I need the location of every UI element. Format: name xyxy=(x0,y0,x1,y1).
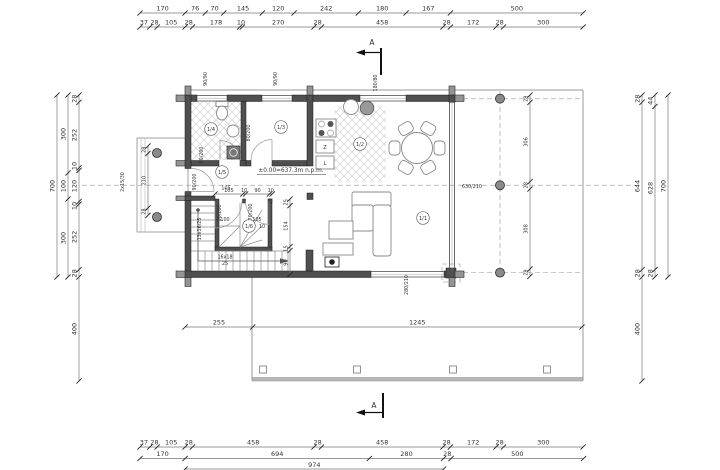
coffee-table xyxy=(329,221,353,239)
dim-label: 28 xyxy=(634,95,642,103)
dim-label: 70 xyxy=(210,5,218,13)
dim-label: 105 xyxy=(165,439,177,447)
dim-label: 28 xyxy=(524,96,530,102)
chair xyxy=(434,141,445,155)
dim-label: 100 xyxy=(60,180,68,192)
opening-label: 80/200 xyxy=(199,147,205,164)
room-door xyxy=(251,140,272,161)
svg-text:1/4: 1/4 xyxy=(207,127,215,133)
dim-label: 90 xyxy=(254,188,260,194)
dim-label: 28 xyxy=(142,147,148,153)
section-label: A xyxy=(369,38,375,47)
dim-label: 255 xyxy=(213,319,225,327)
dim-label: 300 xyxy=(537,439,549,447)
dim-label: 170 xyxy=(156,5,168,13)
dim-label: 308 xyxy=(524,224,530,234)
dim-stair-right: 25 154 15 90 xyxy=(284,196,293,277)
terrace-post xyxy=(354,366,361,373)
section-label: A xyxy=(371,401,377,410)
dim-bottom-row3: 974 xyxy=(183,461,447,470)
annotations: ±0.00=637.3m n.p.m. 90/200 80/200 80/200… xyxy=(120,72,482,295)
dim-label: 28 xyxy=(142,208,148,214)
dim-label: 500 xyxy=(511,5,523,13)
floor-plan-page: Z L 1/4 1/3 1/2 1/5 1/6 1/1 ±0.00=637.3m… xyxy=(0,0,720,470)
terrace-post xyxy=(260,366,267,373)
dim-label: 28 xyxy=(314,439,322,447)
dim-label: 28 xyxy=(524,269,530,275)
appliance-label: Z xyxy=(323,145,327,151)
svg-text:1/5: 1/5 xyxy=(218,170,226,176)
opening-label: 80/200 xyxy=(246,125,252,142)
stair-note: 13x16/25 xyxy=(197,218,203,241)
fridge: Z xyxy=(316,140,334,153)
dim-label: 28 xyxy=(150,439,158,447)
sofa xyxy=(352,192,391,256)
dim-label: 28 xyxy=(634,269,642,277)
dim-porch: 28 210 28 xyxy=(142,143,151,218)
dim-label: 458 xyxy=(247,439,259,447)
dim-label: 210 xyxy=(142,176,148,186)
toilet xyxy=(216,102,228,121)
dim-label: 458 xyxy=(376,19,388,27)
dim-label: 28 xyxy=(185,19,193,27)
room-label-kitchen: 1/2 xyxy=(354,138,367,151)
terrace-post xyxy=(544,366,551,373)
dim-label: 300 xyxy=(537,19,549,27)
stair-note: 10 xyxy=(259,224,265,230)
bathroom-window xyxy=(197,96,227,102)
dim-label: 400 xyxy=(71,323,79,335)
appliance-label: L xyxy=(324,161,327,167)
opening-label: 280/210 xyxy=(404,275,410,295)
svg-text:1/1: 1/1 xyxy=(419,216,427,222)
dim-label: 10 xyxy=(71,162,79,170)
washing-machine xyxy=(227,146,240,159)
dim-label: 28 xyxy=(150,19,158,27)
dim-label: 1245 xyxy=(409,319,426,327)
dim-label: 28 xyxy=(443,450,451,458)
room-window xyxy=(262,96,292,102)
dim-label: 105 xyxy=(224,188,234,194)
opening-label: 90/90 xyxy=(273,72,279,86)
dim-label: 145 xyxy=(237,5,249,13)
room-label-hall: 1/5 xyxy=(216,166,229,179)
dim-label: 10 xyxy=(241,188,247,194)
dim-label: 500 xyxy=(511,450,523,458)
svg-text:1/3: 1/3 xyxy=(277,125,285,131)
kitchen-window xyxy=(360,96,406,102)
dim-label: 252 xyxy=(71,129,79,141)
dim-label: 28 xyxy=(524,182,530,188)
dim-terrace-horizontal: 255 1245 xyxy=(183,319,585,330)
section-marker-bottom: A xyxy=(356,393,383,418)
dim-label: 280 xyxy=(400,450,412,458)
dim-label: 25 xyxy=(284,199,290,205)
opening-label: 630/210 xyxy=(462,184,482,190)
dim-label: 120 xyxy=(71,180,79,192)
dim-label: 300 xyxy=(60,232,68,244)
dim-label: 172 xyxy=(467,439,479,447)
dim-label: 28 xyxy=(443,19,451,27)
dim-label: 10 xyxy=(268,188,274,194)
dim-label: 167 xyxy=(422,5,434,13)
stair-note: 100 xyxy=(220,217,229,223)
dim-label: 644 xyxy=(634,180,642,192)
dim-label: 105 xyxy=(165,19,177,27)
dim-label: 170 xyxy=(156,450,168,458)
dim-left-outer: 700 xyxy=(49,92,60,279)
dining-table xyxy=(389,120,445,175)
dim-label: 252 xyxy=(71,231,79,243)
dim-label: 10 xyxy=(71,202,79,210)
dim-right-low: 400 xyxy=(634,277,645,384)
opening-label: 2x15/30 xyxy=(120,172,126,192)
dim-label: 28 xyxy=(496,19,504,27)
dim-label: 172 xyxy=(467,19,479,27)
dim-label: 178 xyxy=(210,19,222,27)
dim-label: 306 xyxy=(524,137,530,147)
opening-label: 90/90 xyxy=(203,72,209,86)
floor-plan-drawing: Z L 1/4 1/3 1/2 1/5 1/6 1/1 ±0.00=637.3m… xyxy=(0,0,720,470)
dim-label: 694 xyxy=(271,450,283,458)
opening-label: 180/80 xyxy=(373,75,379,92)
opening-label: 90/200 xyxy=(192,174,198,191)
dim-left-inner: 28 252 10 120 10 252 28 xyxy=(71,92,82,279)
wash-basin xyxy=(227,125,239,137)
terrace-column xyxy=(496,181,505,190)
dim-label: 300 xyxy=(60,128,68,140)
porch-column xyxy=(153,149,162,158)
section-marker-top: A xyxy=(356,38,381,75)
dim-label: 458 xyxy=(376,439,388,447)
dim-bottom-row2: 170 694 280 28 500 xyxy=(137,450,586,461)
dim-left-mid: 300 100 300 xyxy=(60,92,71,279)
dim-left-low: 400 xyxy=(71,277,82,384)
dim-label: 270 xyxy=(272,19,284,27)
dim-label: 628 xyxy=(647,182,655,194)
dim-label: 37 xyxy=(140,19,148,27)
dim-right-inner: 28 644 28 xyxy=(634,92,645,279)
dim-label: 242 xyxy=(320,5,332,13)
dim-label: 120 xyxy=(272,5,284,13)
dim-top-row1: 170 76 70 145 120 242 180 167 500 xyxy=(137,5,585,16)
dim-label: 76 xyxy=(191,5,199,13)
dim-label: 28 xyxy=(496,439,504,447)
dim-label: 154 xyxy=(284,221,290,231)
room-label-living: 1/1 xyxy=(417,212,430,225)
dim-label: 37 xyxy=(140,439,148,447)
dim-label: 10 xyxy=(237,19,245,27)
dim-label: 28 xyxy=(71,269,79,277)
dim-label: 15 xyxy=(284,245,290,251)
terrace-column xyxy=(496,94,505,103)
dim-label: 974 xyxy=(308,461,320,469)
dim-right-outer: 700 xyxy=(660,92,671,279)
dim-label: 700 xyxy=(660,180,668,192)
tv-cabinet xyxy=(323,243,353,255)
terrace-post xyxy=(450,366,457,373)
porch-column xyxy=(153,213,162,222)
dim-bottom-row1: 37 28 105 28 458 28 458 28 172 28 300 xyxy=(137,439,585,450)
svg-text:1/2: 1/2 xyxy=(356,142,364,148)
dim-label: 90 xyxy=(284,259,290,265)
glass-wall xyxy=(450,102,455,269)
dim-label: 28 xyxy=(314,19,322,27)
dim-label: 28 xyxy=(443,439,451,447)
svg-text:1/6: 1/6 xyxy=(245,224,253,230)
dim-top-row2: 37 28 105 28 178 10 270 28 458 28 172 28… xyxy=(137,19,585,30)
dim-label: 44 xyxy=(647,97,655,105)
dim-label: 28 xyxy=(71,95,79,103)
stair-note: 105 xyxy=(252,217,261,223)
terrace-column xyxy=(496,268,505,277)
chair xyxy=(389,141,400,155)
room-label-bathroom: 1/4 xyxy=(205,123,218,136)
dim-label: 28 xyxy=(647,269,655,277)
dim-label: 28 xyxy=(185,439,193,447)
dim-label: 180 xyxy=(376,5,388,13)
dim-label: 700 xyxy=(49,180,57,192)
fireplace xyxy=(325,257,339,267)
stair-note: 16x18 xyxy=(217,255,232,261)
room-label-room: 1/3 xyxy=(275,121,288,134)
level-mark: ±0.00=637.3m n.p.m. xyxy=(258,168,323,174)
dim-label: 400 xyxy=(634,323,642,335)
stove xyxy=(316,119,336,137)
stair-note: 25 xyxy=(222,261,228,267)
dim-right-mid: 44 628 28 xyxy=(647,92,658,279)
